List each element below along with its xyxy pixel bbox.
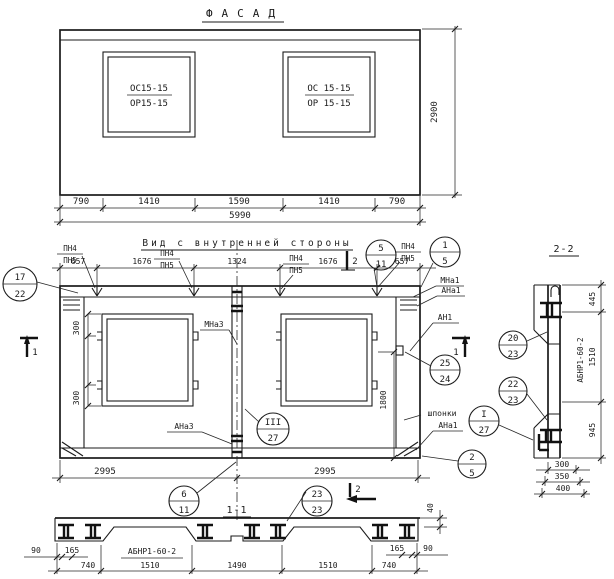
callout-25-24: 25 24 bbox=[405, 352, 460, 385]
dim-40: 40 bbox=[420, 503, 447, 534]
callout-top: 6 bbox=[181, 490, 186, 500]
callout-top: 1 bbox=[442, 241, 447, 251]
callout-bottom: 22 bbox=[15, 290, 26, 300]
callout-top: 2 bbox=[469, 453, 474, 463]
dim-value: 90 bbox=[423, 544, 433, 553]
dim-total: 5990 bbox=[229, 211, 251, 221]
label-an1: АН1 bbox=[438, 313, 453, 322]
dim-value: 790 bbox=[73, 197, 89, 207]
dim-value: 300 bbox=[72, 321, 81, 336]
rib-latch bbox=[396, 346, 403, 355]
dim-value: 2995 bbox=[314, 467, 336, 477]
dim-value: 1510 bbox=[140, 561, 159, 570]
dim-value: 1410 bbox=[318, 197, 340, 207]
section-2-2-profile bbox=[534, 285, 562, 458]
dim-value: 1800 bbox=[379, 390, 388, 409]
section-mark-label: 1 bbox=[453, 348, 458, 358]
section-1-1-profile bbox=[55, 518, 420, 541]
dim-value: 740 bbox=[81, 561, 96, 570]
inner-bottom-dimensions: 2995 2995 bbox=[52, 460, 430, 483]
dim-value: 1590 bbox=[228, 197, 250, 207]
dim-value: 740 bbox=[382, 561, 397, 570]
callout-5-11: 5 11 bbox=[366, 240, 396, 287]
dim-value: 400 bbox=[556, 484, 571, 493]
callout-I-27: I 27 bbox=[469, 406, 533, 440]
window-mark-top: ОС 15-15 bbox=[307, 84, 350, 94]
section-1-1: 1-1 40 90 bbox=[24, 503, 448, 574]
dim-value: 1676 bbox=[132, 257, 151, 266]
inner-title: Вид с внутренней стороны bbox=[142, 238, 351, 249]
callouts: 17 22 5 11 1 5 25 24 20 23 bbox=[3, 237, 547, 521]
dim-value: 300 bbox=[555, 460, 570, 469]
window-mark-bottom: ОР 15-15 bbox=[307, 99, 350, 109]
loop-label-bottom: ПН5 bbox=[63, 256, 77, 265]
dim-value: 165 bbox=[65, 546, 80, 555]
section-mark-label: 2 bbox=[352, 257, 357, 267]
facade-window-right-mark: ОС 15-15 ОР 15-15 bbox=[305, 84, 354, 109]
section-mark-label: 1 bbox=[32, 348, 37, 358]
loop-label-top: ПН4 bbox=[160, 249, 174, 258]
dim-value: 1510 bbox=[318, 561, 337, 570]
callout-bottom: 27 bbox=[479, 426, 490, 436]
window-latch-dimensions: 300 300 bbox=[72, 311, 101, 409]
facade-dimensions: 790 1410 1590 1410 790 5990 2900 bbox=[54, 26, 462, 226]
label-shponki: шпонки bbox=[428, 409, 457, 418]
callout-top: III bbox=[265, 418, 281, 428]
facade-panel bbox=[60, 30, 420, 195]
loop-label-top: ПН4 bbox=[289, 254, 303, 263]
dim-value: 165 bbox=[390, 544, 405, 553]
label-ana1: АНа1 bbox=[441, 286, 460, 295]
label-mna1: МНа1 bbox=[440, 276, 459, 285]
callout-2-5: 2 5 bbox=[422, 450, 486, 479]
label-ana3: АНа3 bbox=[174, 422, 193, 431]
section-1-1-dimensions: 90 165 165 90 АБНР1-60-2 740 1510 1490 1… bbox=[24, 543, 448, 574]
dim-value: 445 bbox=[588, 292, 597, 307]
callout-top: 22 bbox=[508, 380, 519, 390]
loop-label-top: ПН4 bbox=[63, 244, 77, 253]
callout-bottom: 23 bbox=[508, 350, 519, 360]
dim-1800: 1800 bbox=[378, 349, 397, 461]
dim-height: 2900 bbox=[430, 101, 440, 123]
label-ana1-bottom: АНа1 bbox=[438, 421, 457, 430]
part-label: АБНР1-60-2 bbox=[128, 547, 176, 556]
callout-top: 20 bbox=[508, 334, 519, 344]
section-2-2: 2-2 445 1510 945 АБНР1-60-2 300 350 400 bbox=[534, 244, 606, 498]
panel-drawing-svg: ФАСАД ОС15-15 ОР15-15 ОС 15-15 ОР 15-15 … bbox=[0, 0, 614, 579]
callout-bottom: 23 bbox=[508, 396, 519, 406]
dim-value: 2995 bbox=[94, 467, 116, 477]
callout-bottom: 5 bbox=[469, 469, 474, 479]
section-mark-label: 2 bbox=[355, 485, 360, 495]
callout-22-23: 22 23 bbox=[499, 377, 547, 420]
window-mark-bottom: ОР15-15 bbox=[130, 99, 168, 109]
section-mark-2-bottom: 2 bbox=[346, 483, 376, 503]
section-title: 2-2 bbox=[553, 244, 574, 255]
dim-value: 1510 bbox=[588, 347, 597, 366]
inner-view: Вид с внутренней стороны 657 1676 1324 1… bbox=[20, 238, 470, 522]
part-label: АБНР1-60-2 bbox=[576, 337, 585, 382]
callout-top: I bbox=[481, 410, 486, 420]
callout-bottom: 11 bbox=[376, 260, 387, 270]
section-2-2-dimensions: 445 1510 945 АБНР1-60-2 300 350 400 bbox=[534, 280, 606, 498]
callout-bottom: 23 bbox=[312, 506, 323, 516]
callout-bottom: 11 bbox=[179, 506, 190, 516]
callout-bottom: 27 bbox=[268, 434, 279, 444]
section-title: 1-1 bbox=[226, 505, 247, 516]
section-mark-1-left: 1 bbox=[20, 335, 38, 358]
dim-value: 790 bbox=[389, 197, 405, 207]
dim-value: 945 bbox=[588, 423, 597, 438]
dim-value: 90 bbox=[31, 546, 41, 555]
facade-window-left-mark: ОС15-15 ОР15-15 bbox=[127, 84, 172, 109]
loop-label-bottom: ПН5 bbox=[401, 254, 415, 263]
section-mark-1-right: 1 bbox=[452, 335, 470, 358]
section-mark-2-top: 2 bbox=[341, 251, 358, 270]
loop-label-bottom: ПН5 bbox=[160, 261, 174, 270]
callout-top: 23 bbox=[312, 490, 323, 500]
label-mna3: МНа3 bbox=[204, 320, 223, 329]
dim-value: 1676 bbox=[318, 257, 337, 266]
dim-value: 350 bbox=[555, 472, 570, 481]
inner-panel bbox=[60, 240, 420, 522]
callout-top: 25 bbox=[440, 359, 451, 369]
window-mark-top: ОС15-15 bbox=[130, 84, 168, 94]
loop-label-bottom: ПН5 bbox=[289, 266, 303, 275]
blueprint-canvas: ФАСАД ОС15-15 ОР15-15 ОС 15-15 ОР 15-15 … bbox=[0, 0, 614, 579]
dim-value: 1410 bbox=[138, 197, 160, 207]
dim-value: 1490 bbox=[227, 561, 246, 570]
loop-label-top: ПН4 bbox=[401, 242, 415, 251]
callout-23-23: 23 23 bbox=[287, 486, 332, 521]
callout-top: 5 bbox=[378, 244, 383, 254]
callout-bottom: 5 bbox=[442, 257, 447, 267]
dim-value: 300 bbox=[72, 391, 81, 406]
callout-III-27: III 27 bbox=[245, 409, 289, 445]
facade-view: ФАСАД ОС15-15 ОР15-15 ОС 15-15 ОР 15-15 … bbox=[54, 7, 462, 226]
callout-bottom: 24 bbox=[440, 375, 451, 385]
callout-top: 17 bbox=[15, 273, 26, 283]
dim-value: 40 bbox=[426, 503, 435, 513]
facade-title: ФАСАД bbox=[206, 7, 284, 20]
callout-20-23: 20 23 bbox=[499, 331, 547, 360]
callout-17-22: 17 22 bbox=[3, 267, 78, 301]
